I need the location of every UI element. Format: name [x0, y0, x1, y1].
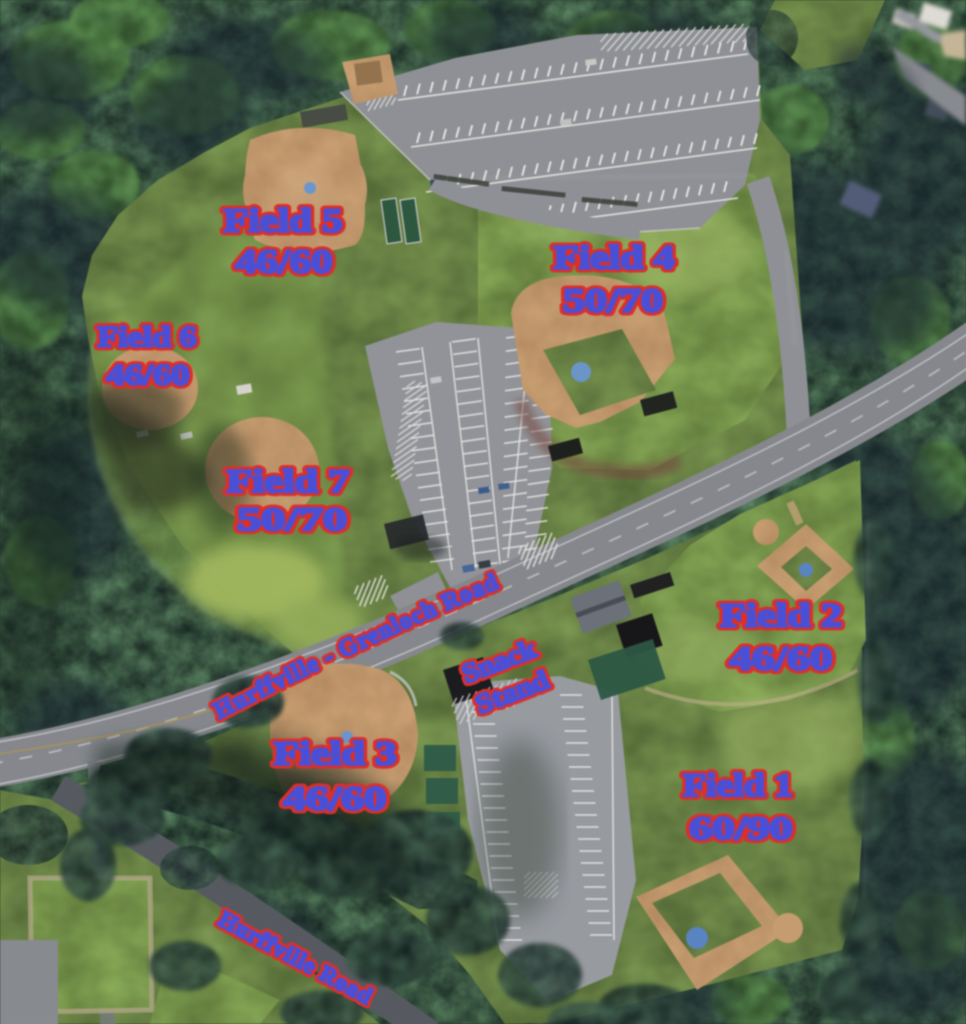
- svg-text:50/70: 50/70: [237, 502, 347, 538]
- svg-text:Field 6: Field 6: [98, 321, 197, 354]
- svg-text:Field 5: Field 5: [224, 203, 343, 240]
- svg-text:46/60: 46/60: [730, 641, 833, 678]
- svg-text:46/60: 46/60: [284, 781, 387, 818]
- svg-text:60/90: 60/90: [690, 811, 793, 847]
- svg-text:Field 3: Field 3: [274, 736, 397, 773]
- svg-text:46/60: 46/60: [107, 359, 190, 392]
- svg-text:Field 7: Field 7: [227, 464, 350, 500]
- svg-text:50/70: 50/70: [563, 283, 663, 320]
- svg-text:Field 1: Field 1: [683, 768, 793, 804]
- svg-text:Field 2: Field 2: [720, 598, 842, 635]
- svg-text:Field 4: Field 4: [554, 240, 675, 277]
- svg-text:46/60: 46/60: [236, 244, 333, 281]
